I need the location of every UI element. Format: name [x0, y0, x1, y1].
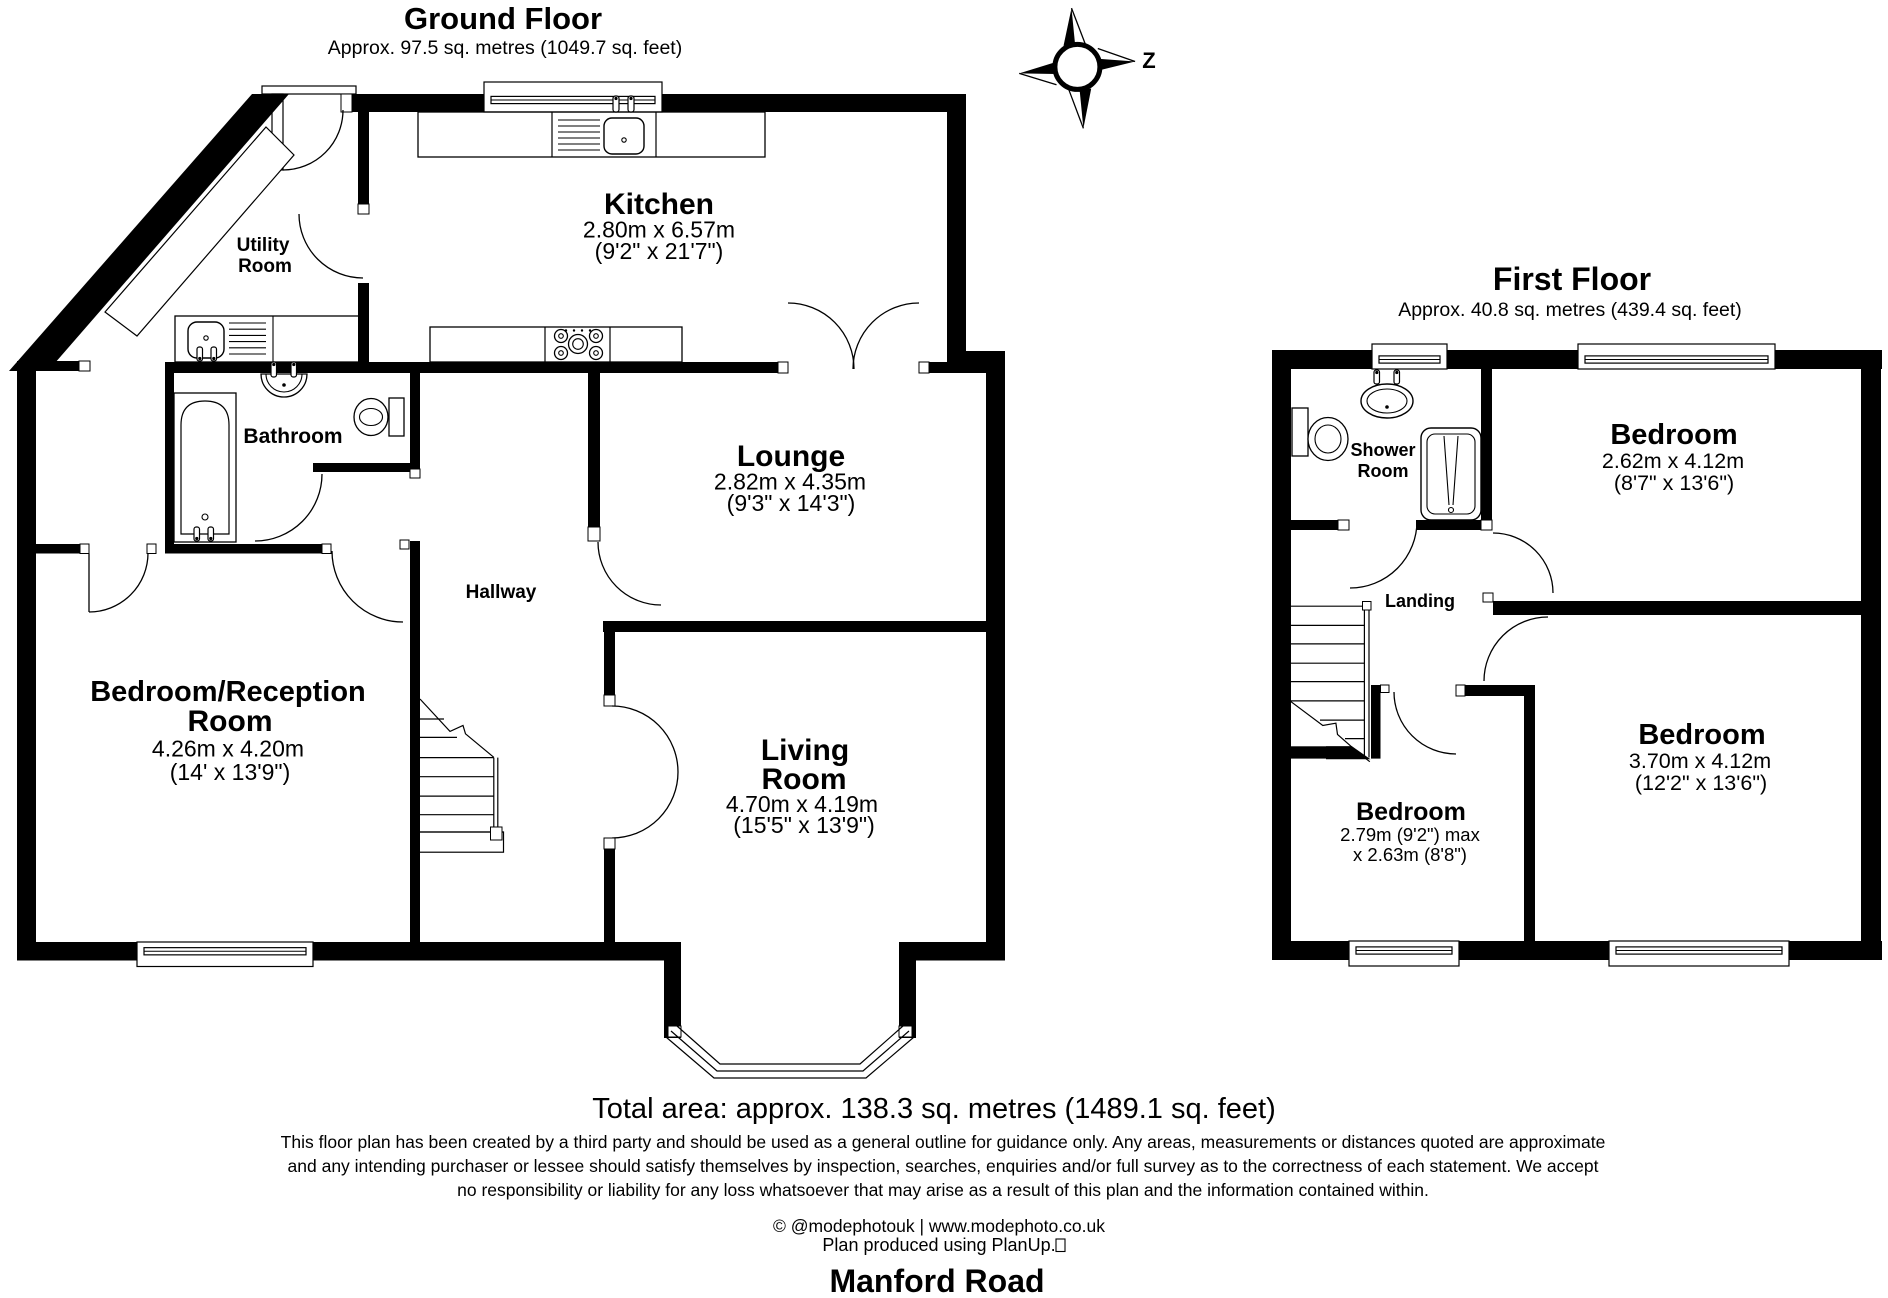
svg-text:Plan produced using PlanUp.: Plan produced using PlanUp. — [822, 1235, 1055, 1255]
svg-text:© @modephotouk | www.modephoto: © @modephotouk | www.modephoto.co.uk — [773, 1216, 1105, 1236]
svg-text:(9'3" x 14'3"): (9'3" x 14'3") — [727, 490, 856, 516]
svg-text:Bedroom: Bedroom — [1610, 419, 1737, 451]
svg-text:Bedroom: Bedroom — [1638, 719, 1765, 751]
svg-text:Z: Z — [1142, 48, 1155, 73]
svg-text:Total area: approx. 138.3 sq.: Total area: approx. 138.3 sq. metres (14… — [592, 1093, 1276, 1125]
svg-text:Bedroom: Bedroom — [1356, 798, 1466, 826]
svg-text:2.79m (9'2") max: 2.79m (9'2") max — [1340, 824, 1480, 845]
svg-text:no responsibility or liability: no responsibility or liability for any l… — [457, 1180, 1429, 1200]
svg-text:Approx. 40.8 sq. metres (439.4: Approx. 40.8 sq. metres (439.4 sq. feet) — [1398, 299, 1742, 321]
svg-text:Bedroom/Reception: Bedroom/Reception — [90, 676, 366, 708]
svg-text:3.70m x 4.12m: 3.70m x 4.12m — [1629, 749, 1771, 773]
svg-text:Room: Room — [188, 705, 273, 738]
svg-text:Landing: Landing — [1385, 591, 1455, 611]
svg-text:Shower: Shower — [1350, 440, 1415, 460]
svg-text:4.26m x 4.20m: 4.26m x 4.20m — [152, 736, 304, 762]
svg-text:Hallway: Hallway — [466, 582, 537, 603]
svg-text:This floor plan has been creat: This floor plan has been created by a th… — [281, 1132, 1606, 1152]
svg-text:Room: Room — [1358, 461, 1409, 481]
svg-text:Manford Road: Manford Road — [829, 1263, 1044, 1298]
svg-text:Room: Room — [238, 256, 292, 277]
svg-text:x 2.63m (8'8"): x 2.63m (8'8") — [1353, 844, 1467, 865]
svg-text:(9'2" x 21'7"): (9'2" x 21'7") — [595, 238, 724, 264]
svg-text:and any intending purchaser or: and any intending purchaser or lessee sh… — [288, 1156, 1599, 1176]
svg-text:(15'5" x 13'9"): (15'5" x 13'9") — [733, 812, 874, 838]
svg-text:(12'2" x 13'6"): (12'2" x 13'6") — [1635, 771, 1767, 795]
svg-text:Ground Floor: Ground Floor — [404, 1, 602, 36]
svg-text:Utility: Utility — [237, 235, 290, 256]
svg-text:Approx. 97.5 sq. metres (1049.: Approx. 97.5 sq. metres (1049.7 sq. feet… — [328, 37, 682, 59]
svg-text:(8'7" x 13'6"): (8'7" x 13'6") — [1614, 471, 1734, 495]
svg-text:2.62m x 4.12m: 2.62m x 4.12m — [1602, 449, 1744, 473]
svg-text:(14' x 13'9"): (14' x 13'9") — [170, 759, 291, 785]
svg-text:First Floor: First Floor — [1493, 261, 1651, 297]
svg-text:Bathroom: Bathroom — [243, 425, 342, 448]
